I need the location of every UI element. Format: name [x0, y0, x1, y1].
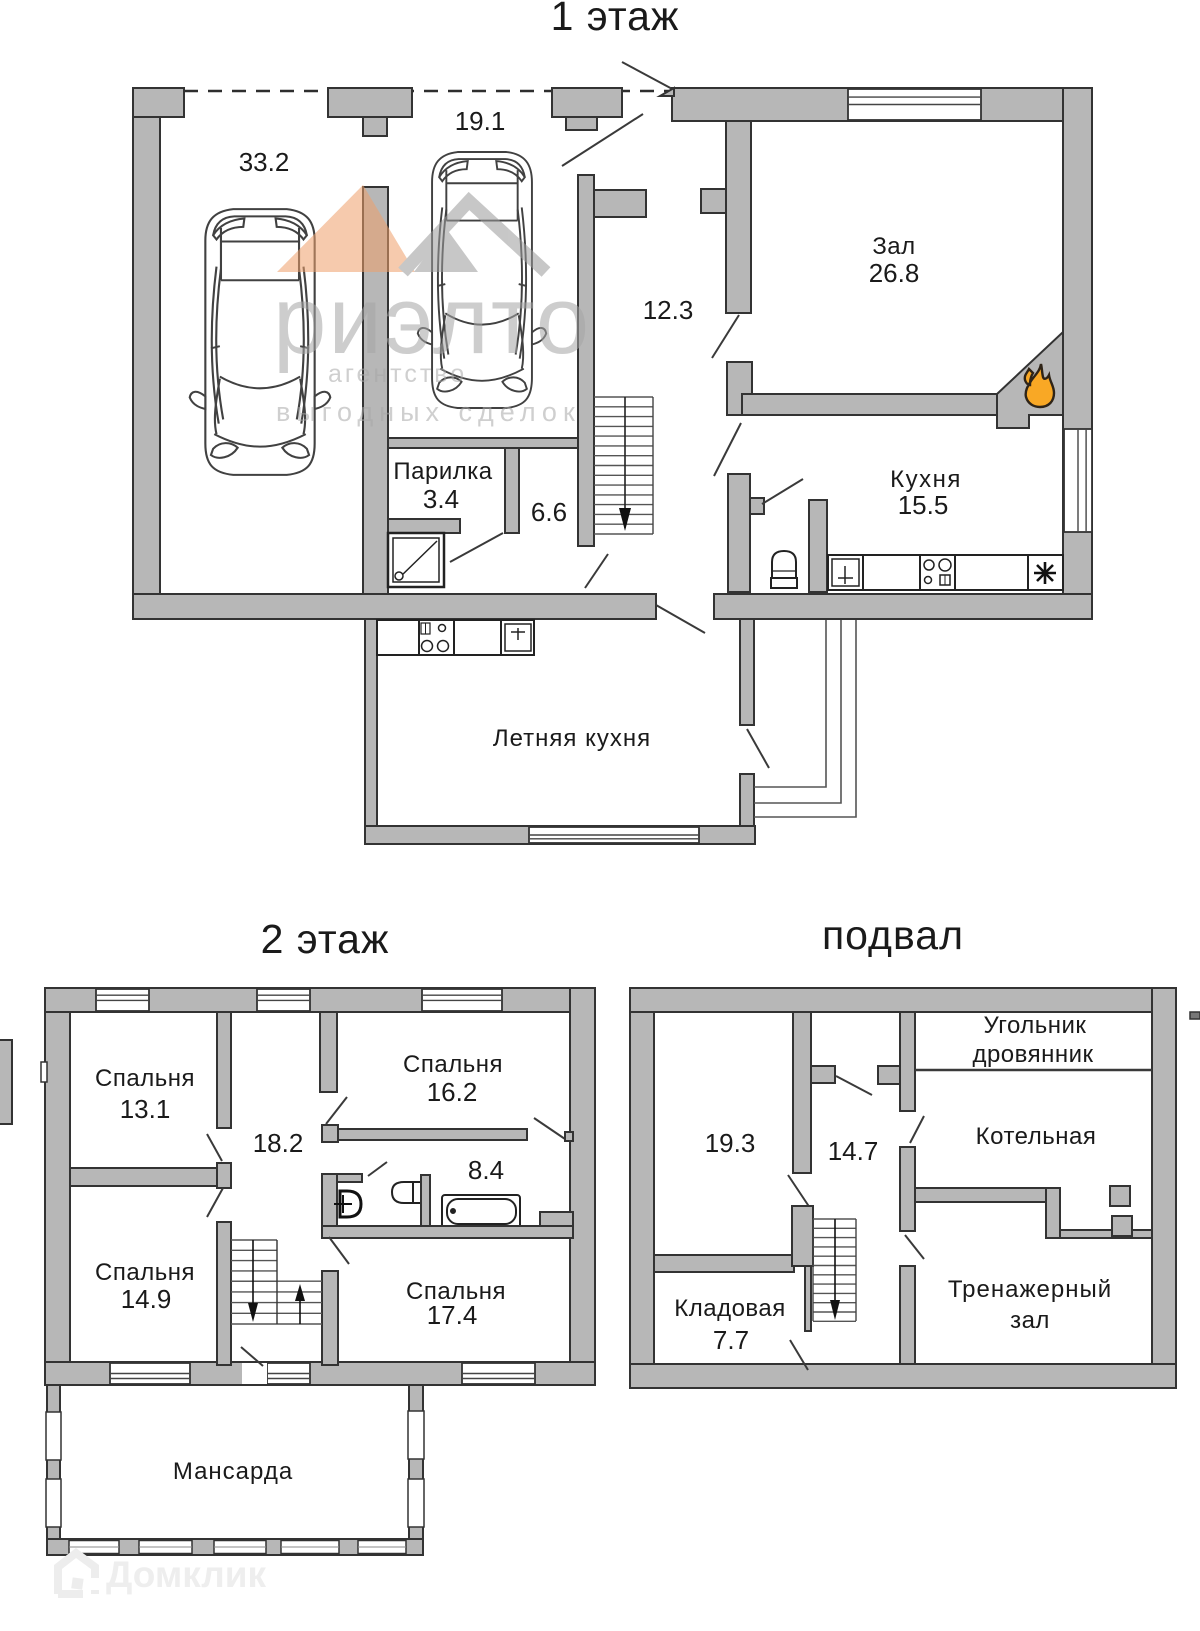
svg-text:риэлто: риэлто: [273, 267, 591, 374]
svg-text:Угольник: Угольник: [984, 1012, 1087, 1039]
svg-text:Тренажерный: Тренажерный: [948, 1276, 1112, 1303]
svg-text:14.7: 14.7: [828, 1136, 879, 1166]
svg-text:дровянник: дровянник: [972, 1041, 1093, 1068]
svg-text:15.5: 15.5: [898, 490, 949, 520]
svg-text:2 этаж: 2 этаж: [261, 916, 390, 962]
svg-text:12.3: 12.3: [643, 295, 694, 325]
svg-text:Мансарда: Мансарда: [173, 1458, 293, 1485]
svg-text:14.9: 14.9: [121, 1284, 172, 1314]
svg-text:3.4: 3.4: [423, 484, 459, 514]
svg-text:17.4: 17.4: [427, 1300, 478, 1330]
svg-text:Зал: Зал: [872, 233, 915, 260]
svg-text:Спальня: Спальня: [95, 1259, 195, 1286]
svg-text:Кладовая: Кладовая: [674, 1295, 786, 1322]
svg-text:8.4: 8.4: [468, 1155, 504, 1185]
svg-text:Летняя кухня: Летняя кухня: [493, 725, 651, 752]
svg-text:16.2: 16.2: [427, 1077, 478, 1107]
svg-text:зал: зал: [1010, 1307, 1050, 1334]
svg-text:26.8: 26.8: [869, 258, 920, 288]
svg-text:18.2: 18.2: [253, 1128, 304, 1158]
svg-text:33.2: 33.2: [239, 147, 290, 177]
svg-text:Спальня: Спальня: [95, 1065, 195, 1092]
svg-text:13.1: 13.1: [120, 1094, 171, 1124]
svg-text:Парилка: Парилка: [393, 458, 492, 485]
svg-text:агентство: агентство: [328, 360, 467, 388]
svg-text:Домклик: Домклик: [106, 1554, 267, 1595]
svg-text:19.3: 19.3: [705, 1128, 756, 1158]
svg-text:Котельная: Котельная: [976, 1123, 1097, 1150]
svg-text:выгодных сделок: выгодных сделок: [276, 397, 581, 427]
svg-text:Кухня: Кухня: [890, 466, 962, 493]
svg-text:Спальня: Спальня: [403, 1051, 503, 1078]
svg-text:подвал: подвал: [822, 912, 964, 958]
svg-text:1 этаж: 1 этаж: [551, 0, 680, 39]
svg-text:7.7: 7.7: [713, 1325, 749, 1355]
svg-text:6.6: 6.6: [531, 497, 567, 527]
svg-text:19.1: 19.1: [455, 106, 506, 136]
